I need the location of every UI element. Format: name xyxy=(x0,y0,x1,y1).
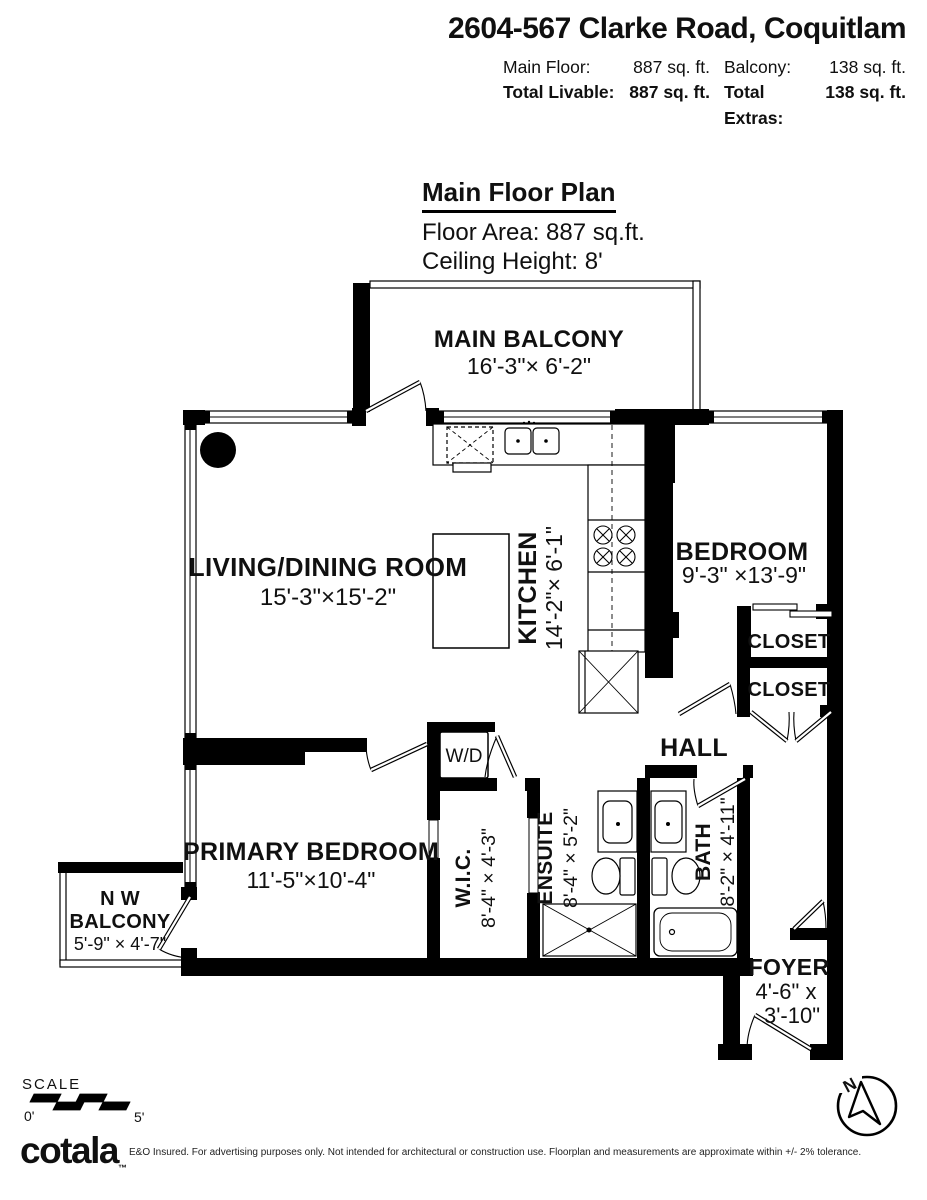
cotala-logo: cotala™ xyxy=(20,1130,127,1173)
floorplan-page: 2604-567 Clarke Road, Coquitlam Main Flo… xyxy=(0,0,927,1200)
ensuite-toilet-icon xyxy=(592,858,635,895)
logo-text: cotala xyxy=(20,1130,118,1171)
bath-label: BATH xyxy=(692,823,715,881)
foyer-dims-1: 4'-6" x xyxy=(756,979,817,1004)
primary-bedroom-label: PRIMARY BEDROOM xyxy=(183,838,439,866)
closet2-door-right-arc xyxy=(794,712,796,741)
nw-balcony-label-2: BALCONY xyxy=(70,911,171,933)
trademark-symbol: ™ xyxy=(118,1163,127,1173)
main-balcony-label: MAIN BALCONY xyxy=(434,326,624,353)
foyer-dims-2: 3'-10" xyxy=(764,1003,820,1028)
scale-start: 0' xyxy=(24,1108,34,1124)
floorplan-drawing: MAIN BALCONY 16'-3"× 6'-2" LIVING/DINING… xyxy=(0,0,927,1200)
entry-door-arc xyxy=(747,1015,755,1049)
main-balcony-dims: 16'-3"× 6'-2" xyxy=(467,353,591,379)
balcony-door-arc xyxy=(420,382,426,411)
hall-foyer-door-arc xyxy=(823,901,826,928)
foyer-label: FOYER xyxy=(749,954,830,980)
scale-bar: SCALE 0' 5' xyxy=(22,1076,144,1125)
window-top-living xyxy=(205,411,352,423)
nw-balcony-label-1: N W xyxy=(100,888,140,910)
closet1-label: CLOSET xyxy=(748,631,831,653)
ensuite-sink-icon xyxy=(603,801,632,843)
kitchen-dims: 14'-2"× 6'-1" xyxy=(541,526,567,650)
bath-sink-icon xyxy=(655,801,682,843)
wd-label: W/D xyxy=(446,746,483,767)
bathtub-icon xyxy=(654,908,737,956)
bedroom-dims: 9'-3" ×13'-9" xyxy=(682,562,806,588)
disclaimer-text: E&O Insured. For advertising purposes on… xyxy=(129,1147,919,1158)
primary-bedroom-dims: 11'-5"×10'-4" xyxy=(247,867,376,893)
closet2-door-left-arc xyxy=(787,712,789,741)
ensuite-dims: 8'-4" × 5'-2" xyxy=(560,808,582,908)
ensuite-fixtures xyxy=(543,791,637,956)
living-dining-dims: 15'-3"×15'-2" xyxy=(260,584,396,611)
wic-label: W.I.C. xyxy=(452,849,475,908)
scale-label: SCALE xyxy=(22,1076,81,1093)
bath-dims: 8'-2" × 4'-11" xyxy=(717,797,739,906)
nw-balcony-dims: 5'-9" × 4'-7" xyxy=(74,934,166,954)
scale-end: 5' xyxy=(134,1109,144,1125)
wic-dims: 8'-4" × 4'-3" xyxy=(478,828,500,928)
hall-label: HALL xyxy=(660,734,728,762)
kitchen-label: KITCHEN xyxy=(514,531,542,644)
compass-icon: N xyxy=(835,1067,896,1135)
bedroom-door-arc xyxy=(730,684,736,714)
column xyxy=(200,432,236,468)
fridge-icon xyxy=(579,651,638,713)
closet2-label: CLOSET xyxy=(748,679,831,701)
window-top-kitchen xyxy=(439,411,615,423)
ensuite-label: ENSUITE xyxy=(534,811,557,904)
shower-icon xyxy=(543,904,636,956)
living-dining-label: LIVING/DINING ROOM xyxy=(189,552,467,582)
window-left-primary xyxy=(185,765,196,887)
window-top-bedroom xyxy=(709,411,827,423)
bath-door-arc xyxy=(694,779,698,806)
